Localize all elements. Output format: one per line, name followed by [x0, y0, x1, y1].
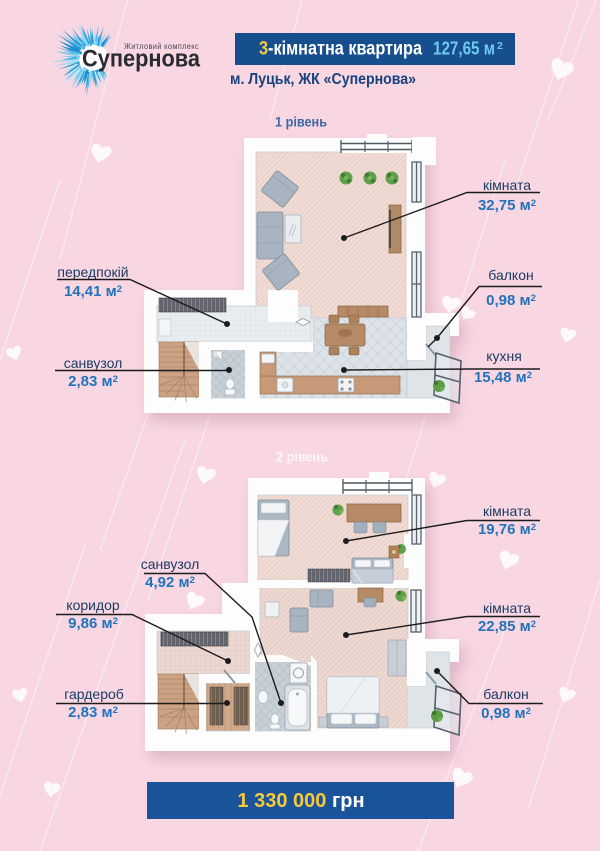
- svg-text:Супернова: Супернова: [82, 46, 201, 73]
- svg-text:1 330 000 грн: 1 330 000 грн: [237, 790, 364, 812]
- svg-text:0,98 м2: 0,98 м2: [481, 705, 531, 722]
- svg-text:9,86 м2: 9,86 м2: [68, 615, 118, 632]
- svg-text:2,83 м2: 2,83 м2: [68, 373, 118, 390]
- svg-text:кімната: кімната: [483, 600, 531, 616]
- svg-text:2 рівень: 2 рівень: [276, 450, 328, 465]
- svg-text:22,85 м2: 22,85 м2: [478, 618, 536, 635]
- svg-text:балкон: балкон: [488, 267, 533, 283]
- svg-text:1 рівень: 1 рівень: [275, 115, 327, 130]
- svg-text:15,48 м2: 15,48 м2: [474, 369, 532, 386]
- svg-text:кімната: кімната: [483, 503, 531, 519]
- svg-text:кімната: кімната: [483, 177, 531, 193]
- svg-text:2: 2: [497, 40, 503, 52]
- svg-text:балкон: балкон: [483, 686, 528, 702]
- svg-text:19,76 м2: 19,76 м2: [478, 521, 536, 538]
- svg-text:м. Луцьк, ЖК «Супернова»: м. Луцьк, ЖК «Супернова»: [230, 71, 416, 88]
- svg-text:кухня: кухня: [486, 348, 522, 364]
- svg-text:коридор: коридор: [66, 597, 120, 613]
- svg-text:127,65 м: 127,65 м: [433, 39, 495, 59]
- svg-text:санвузол: санвузол: [64, 355, 123, 371]
- svg-text:санвузол: санвузол: [141, 556, 200, 572]
- svg-text:передпокій: передпокій: [57, 264, 128, 280]
- svg-text:3-кімнатна квартира: 3-кімнатна квартира: [259, 39, 422, 60]
- svg-text:32,75 м2: 32,75 м2: [478, 197, 536, 214]
- svg-text:2,83 м2: 2,83 м2: [68, 704, 118, 721]
- svg-text:гардероб: гардероб: [64, 686, 124, 702]
- svg-text:4,92 м2: 4,92 м2: [145, 574, 195, 591]
- svg-text:0,98 м2: 0,98 м2: [486, 292, 536, 309]
- svg-text:14,41 м2: 14,41 м2: [64, 283, 122, 300]
